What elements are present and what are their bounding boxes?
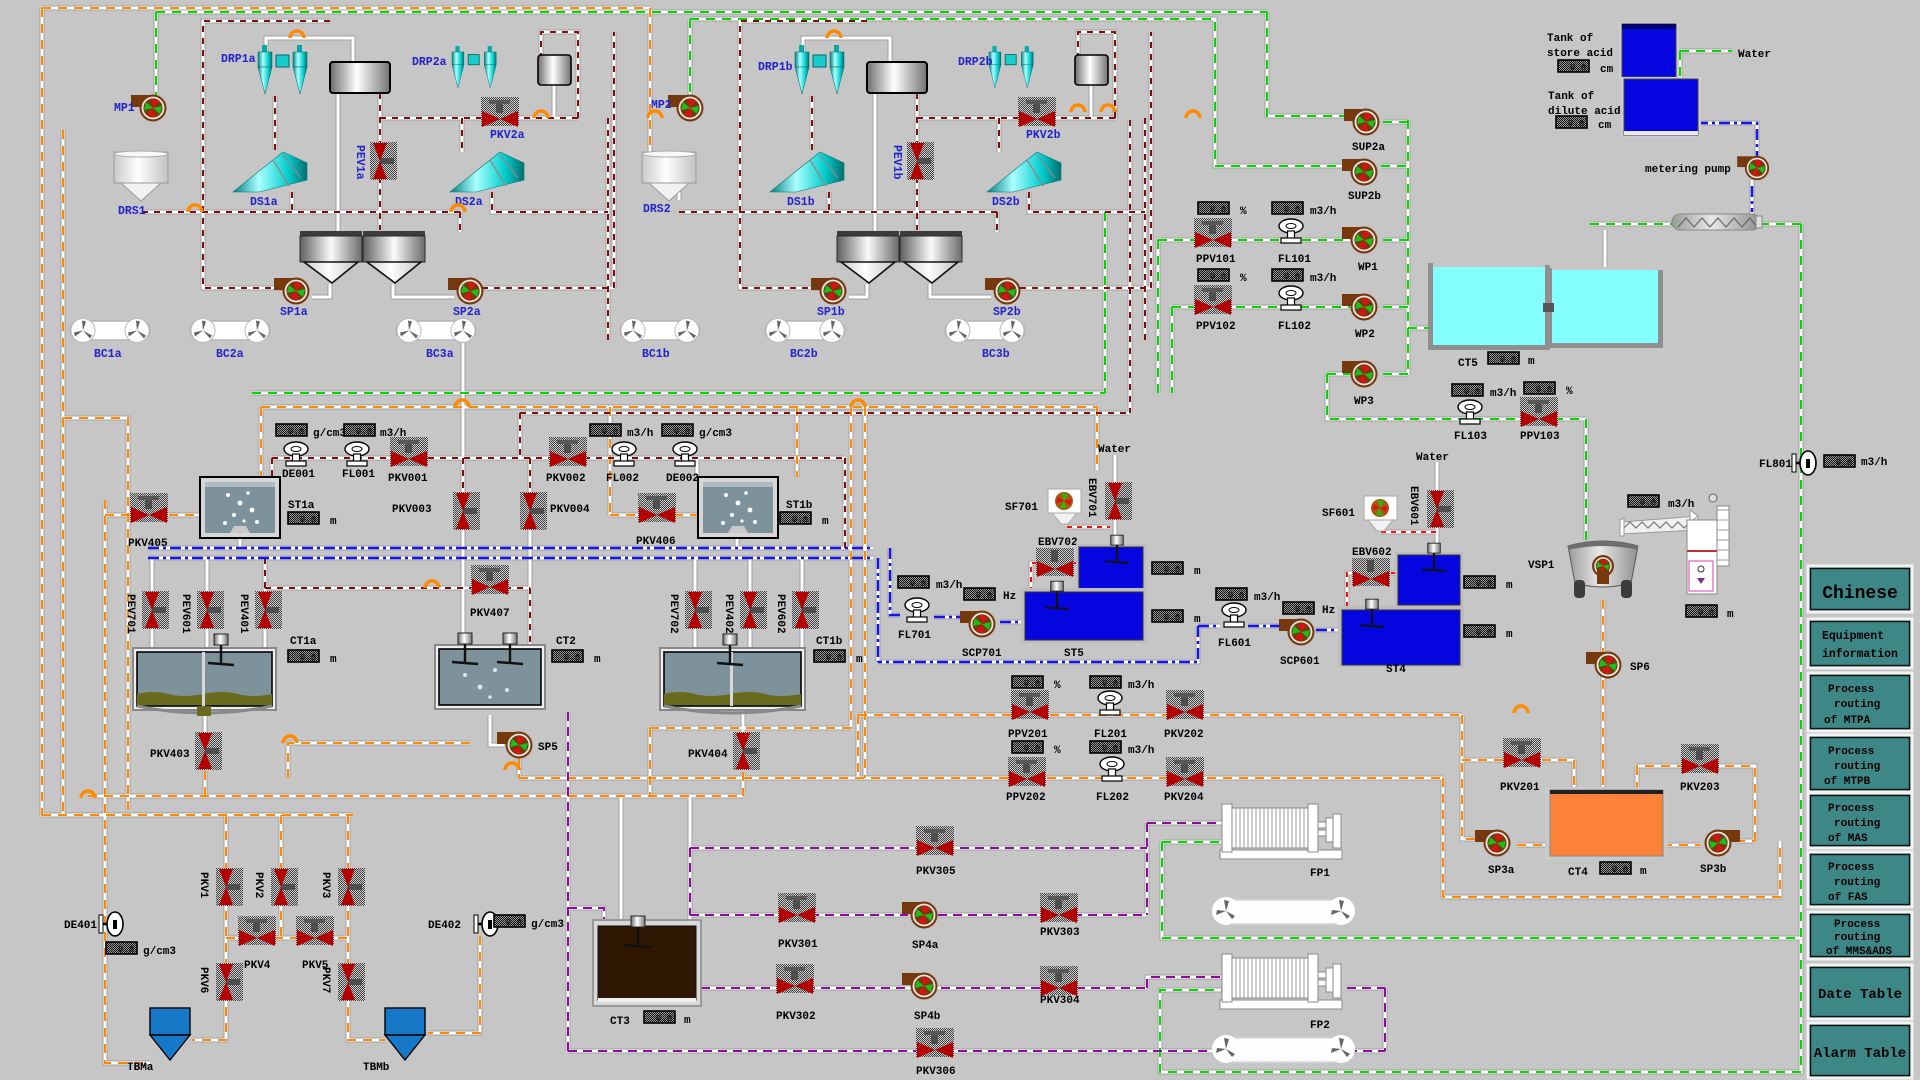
svg-text:PKV306: PKV306 xyxy=(916,1066,956,1078)
svg-text:m: m xyxy=(684,1015,691,1027)
svg-text:DE002: DE002 xyxy=(666,473,699,485)
svg-text:FL201: FL201 xyxy=(1094,729,1127,741)
svg-text:PKV407: PKV407 xyxy=(470,608,510,620)
svg-text:metering pump: metering pump xyxy=(1645,164,1731,176)
svg-text:SCP601: SCP601 xyxy=(1280,656,1320,668)
svg-text:FP1: FP1 xyxy=(1310,868,1330,880)
svg-text:SP2b: SP2b xyxy=(993,306,1021,319)
svg-text:EBV601: EBV601 xyxy=(1407,486,1419,526)
svg-text:BC2b: BC2b xyxy=(790,348,818,361)
svg-text:PKV304: PKV304 xyxy=(1040,995,1080,1007)
svg-text:CT1a: CT1a xyxy=(290,636,317,648)
svg-text:m: m xyxy=(1506,580,1513,592)
svg-text:SF601: SF601 xyxy=(1322,508,1355,520)
svg-text:of MTPB: of MTPB xyxy=(1824,776,1871,788)
svg-text:Process: Process xyxy=(1828,746,1874,758)
svg-text:m3/h: m3/h xyxy=(1310,206,1336,218)
svg-text:DRP1a: DRP1a xyxy=(221,53,256,66)
svg-text:m: m xyxy=(1727,609,1734,621)
svg-text:m: m xyxy=(1194,614,1201,626)
svg-text:PKV003: PKV003 xyxy=(392,504,432,516)
svg-text:SCP701: SCP701 xyxy=(962,648,1002,660)
svg-text:Process: Process xyxy=(1828,684,1874,696)
svg-text:g/cm3: g/cm3 xyxy=(531,919,564,931)
svg-text:DS1b: DS1b xyxy=(787,196,815,209)
svg-text:Hz: Hz xyxy=(1003,591,1016,603)
svg-text:PKV404: PKV404 xyxy=(688,749,728,761)
svg-text:PKV3: PKV3 xyxy=(319,872,331,899)
svg-text:DS1a: DS1a xyxy=(250,196,278,209)
svg-text:routing: routing xyxy=(1834,877,1880,889)
svg-text:information: information xyxy=(1822,648,1898,661)
svg-text:PKV202: PKV202 xyxy=(1164,729,1204,741)
svg-text:SP4a: SP4a xyxy=(912,940,939,952)
svg-text:DE401: DE401 xyxy=(64,920,97,932)
svg-text:FL701: FL701 xyxy=(898,630,931,642)
svg-text:PKV303: PKV303 xyxy=(1040,927,1080,939)
svg-text:PKV2b: PKV2b xyxy=(1026,129,1061,142)
svg-text:PPV103: PPV103 xyxy=(1520,431,1560,443)
svg-text:FL101: FL101 xyxy=(1278,254,1311,266)
svg-text:FL103: FL103 xyxy=(1454,431,1487,443)
svg-text:DE001: DE001 xyxy=(282,469,315,481)
svg-text:PEV601: PEV601 xyxy=(179,594,191,634)
svg-text:PKV7: PKV7 xyxy=(319,967,331,993)
svg-text:Water: Water xyxy=(1738,49,1771,61)
svg-text:PEV701: PEV701 xyxy=(124,594,136,634)
svg-text:m3/h: m3/h xyxy=(1490,388,1516,400)
svg-text:m: m xyxy=(822,516,829,528)
svg-text:PKV204: PKV204 xyxy=(1164,792,1204,804)
svg-text:cm: cm xyxy=(1598,120,1612,132)
svg-text:Tank of: Tank of xyxy=(1548,91,1595,103)
svg-text:BC1b: BC1b xyxy=(642,348,670,361)
svg-text:Alarm Table: Alarm Table xyxy=(1814,1046,1906,1062)
svg-text:%: % xyxy=(1566,386,1573,398)
svg-text:m: m xyxy=(1194,566,1201,578)
svg-text:routing: routing xyxy=(1834,761,1880,773)
svg-text:g/cm3: g/cm3 xyxy=(699,428,732,440)
svg-text:FL601: FL601 xyxy=(1218,638,1251,650)
svg-text:SP5: SP5 xyxy=(538,742,558,754)
svg-text:m3/h: m3/h xyxy=(936,580,962,592)
svg-text:PKV2: PKV2 xyxy=(252,872,264,898)
svg-text:PPV101: PPV101 xyxy=(1196,254,1236,266)
svg-text:SP1b: SP1b xyxy=(817,306,845,319)
svg-text:TBMa: TBMa xyxy=(127,1062,154,1074)
svg-text:DRP2b: DRP2b xyxy=(958,56,993,69)
svg-text:PKV301: PKV301 xyxy=(778,939,818,951)
svg-text:BC3a: BC3a xyxy=(426,348,454,361)
svg-text:m: m xyxy=(594,654,601,666)
svg-text:Water: Water xyxy=(1098,444,1131,456)
svg-text:SUP2a: SUP2a xyxy=(1352,142,1385,154)
svg-text:PKV305: PKV305 xyxy=(916,866,956,878)
svg-text:m3/h: m3/h xyxy=(1254,592,1280,604)
svg-text:Hz: Hz xyxy=(1322,605,1335,617)
svg-text:PEV1a: PEV1a xyxy=(353,145,366,180)
svg-text:FL002: FL002 xyxy=(606,473,639,485)
svg-text:m3/h: m3/h xyxy=(1861,457,1887,469)
svg-text:PPV202: PPV202 xyxy=(1006,792,1046,804)
svg-text:routing: routing xyxy=(1834,932,1880,944)
svg-text:WP2: WP2 xyxy=(1355,329,1375,341)
svg-text:EBV602: EBV602 xyxy=(1352,547,1392,559)
svg-text:routing: routing xyxy=(1834,818,1880,830)
svg-text:%: % xyxy=(1054,680,1061,692)
svg-text:PPV201: PPV201 xyxy=(1008,729,1048,741)
svg-text:PEV402: PEV402 xyxy=(722,594,734,634)
svg-text:m: m xyxy=(1506,629,1513,641)
svg-text:VSP1: VSP1 xyxy=(1528,560,1555,572)
svg-text:of MAS: of MAS xyxy=(1828,833,1868,845)
svg-text:routing: routing xyxy=(1834,699,1880,711)
svg-text:EBV702: EBV702 xyxy=(1038,537,1078,549)
svg-text:WP3: WP3 xyxy=(1354,396,1374,408)
svg-text:FL001: FL001 xyxy=(342,469,375,481)
svg-text:DRS2: DRS2 xyxy=(643,203,671,216)
svg-text:g/cm3: g/cm3 xyxy=(313,428,346,440)
svg-text:ST1b: ST1b xyxy=(786,500,813,512)
svg-text:m: m xyxy=(1528,356,1535,368)
svg-text:DRP1b: DRP1b xyxy=(758,61,793,74)
svg-text:of MMS&ADS: of MMS&ADS xyxy=(1826,946,1892,958)
svg-text:FL801: FL801 xyxy=(1759,459,1792,471)
svg-text:PKV406: PKV406 xyxy=(636,536,676,548)
svg-text:PKV2a: PKV2a xyxy=(490,129,525,142)
svg-text:TBMb: TBMb xyxy=(363,1062,390,1074)
svg-text:SP6: SP6 xyxy=(1630,662,1650,674)
svg-text:SP2a: SP2a xyxy=(453,306,481,319)
svg-text:store acid: store acid xyxy=(1547,48,1613,60)
svg-text:%: % xyxy=(1054,745,1061,757)
svg-text:m: m xyxy=(330,516,337,528)
svg-text:PKV004: PKV004 xyxy=(550,504,590,516)
svg-text:ST4: ST4 xyxy=(1386,664,1406,676)
svg-text:CT1b: CT1b xyxy=(816,636,843,648)
svg-text:PKV4: PKV4 xyxy=(244,960,271,972)
svg-text:DRS1: DRS1 xyxy=(118,205,146,218)
svg-text:BC2a: BC2a xyxy=(216,348,244,361)
svg-text:PEV702: PEV702 xyxy=(667,594,679,634)
svg-text:Chinese: Chinese xyxy=(1822,584,1898,604)
svg-text:WP1: WP1 xyxy=(1358,262,1378,274)
svg-text:CT3: CT3 xyxy=(610,1016,630,1028)
svg-text:%: % xyxy=(1240,273,1247,285)
svg-text:of FAS: of FAS xyxy=(1828,892,1868,904)
svg-text:FL102: FL102 xyxy=(1278,321,1311,333)
svg-text:PKV405: PKV405 xyxy=(128,538,168,550)
svg-text:Equipment: Equipment xyxy=(1822,630,1884,643)
svg-text:PKV002: PKV002 xyxy=(546,473,586,485)
svg-text:FL202: FL202 xyxy=(1096,792,1129,804)
svg-text:CT4: CT4 xyxy=(1568,867,1588,879)
svg-text:Process: Process xyxy=(1828,862,1874,874)
svg-text:DS2a: DS2a xyxy=(455,196,483,209)
svg-text:m3/h: m3/h xyxy=(627,428,653,440)
svg-text:DS2b: DS2b xyxy=(992,196,1020,209)
svg-text:PKV403: PKV403 xyxy=(150,749,190,761)
svg-text:PEV602: PEV602 xyxy=(774,594,786,634)
svg-text:of MTPA: of MTPA xyxy=(1824,715,1871,727)
svg-text:PKV6: PKV6 xyxy=(197,967,209,993)
svg-text:Tank of: Tank of xyxy=(1547,33,1594,45)
svg-text:cm: cm xyxy=(1600,64,1614,76)
svg-text:PKV203: PKV203 xyxy=(1680,782,1720,794)
svg-text:DRP2a: DRP2a xyxy=(412,56,447,69)
svg-text:PKV1: PKV1 xyxy=(197,872,209,899)
svg-text:ST1a: ST1a xyxy=(288,500,315,512)
svg-text:BC3b: BC3b xyxy=(982,348,1010,361)
svg-text:DE402: DE402 xyxy=(428,920,461,932)
svg-text:CT5: CT5 xyxy=(1458,358,1478,370)
svg-text:m: m xyxy=(330,654,337,666)
svg-text:%: % xyxy=(1240,206,1247,218)
svg-text:Process: Process xyxy=(1834,919,1880,931)
svg-text:PKV001: PKV001 xyxy=(388,473,428,485)
svg-text:m: m xyxy=(856,654,863,666)
svg-text:SP1a: SP1a xyxy=(280,306,308,319)
svg-text:EBV701: EBV701 xyxy=(1085,478,1097,518)
svg-text:m: m xyxy=(1640,866,1647,878)
svg-text:BC1a: BC1a xyxy=(94,348,122,361)
svg-text:PKV201: PKV201 xyxy=(1500,782,1540,794)
svg-text:PPV102: PPV102 xyxy=(1196,321,1236,333)
svg-text:m3/h: m3/h xyxy=(1128,745,1154,757)
svg-text:g/cm3: g/cm3 xyxy=(143,946,176,958)
svg-text:PEV1b: PEV1b xyxy=(890,145,903,180)
svg-text:Process: Process xyxy=(1828,803,1874,815)
svg-text:m3/h: m3/h xyxy=(1310,273,1336,285)
svg-text:m3/h: m3/h xyxy=(1668,499,1694,511)
svg-text:PEV401: PEV401 xyxy=(237,594,249,634)
svg-text:PKV302: PKV302 xyxy=(776,1011,816,1023)
svg-text:CT2: CT2 xyxy=(556,636,576,648)
svg-text:Water: Water xyxy=(1416,452,1449,464)
svg-text:SP3a: SP3a xyxy=(1488,865,1515,877)
svg-text:FP2: FP2 xyxy=(1310,1020,1330,1032)
svg-text:ST5: ST5 xyxy=(1064,648,1084,660)
svg-text:m3/h: m3/h xyxy=(1128,680,1154,692)
svg-text:Date Table: Date Table xyxy=(1818,987,1902,1003)
svg-text:MP1: MP1 xyxy=(114,102,135,115)
svg-text:SF701: SF701 xyxy=(1005,502,1038,514)
svg-text:SUP2b: SUP2b xyxy=(1348,191,1381,203)
svg-text:SP3b: SP3b xyxy=(1700,864,1727,876)
svg-text:SP4b: SP4b xyxy=(914,1011,941,1023)
